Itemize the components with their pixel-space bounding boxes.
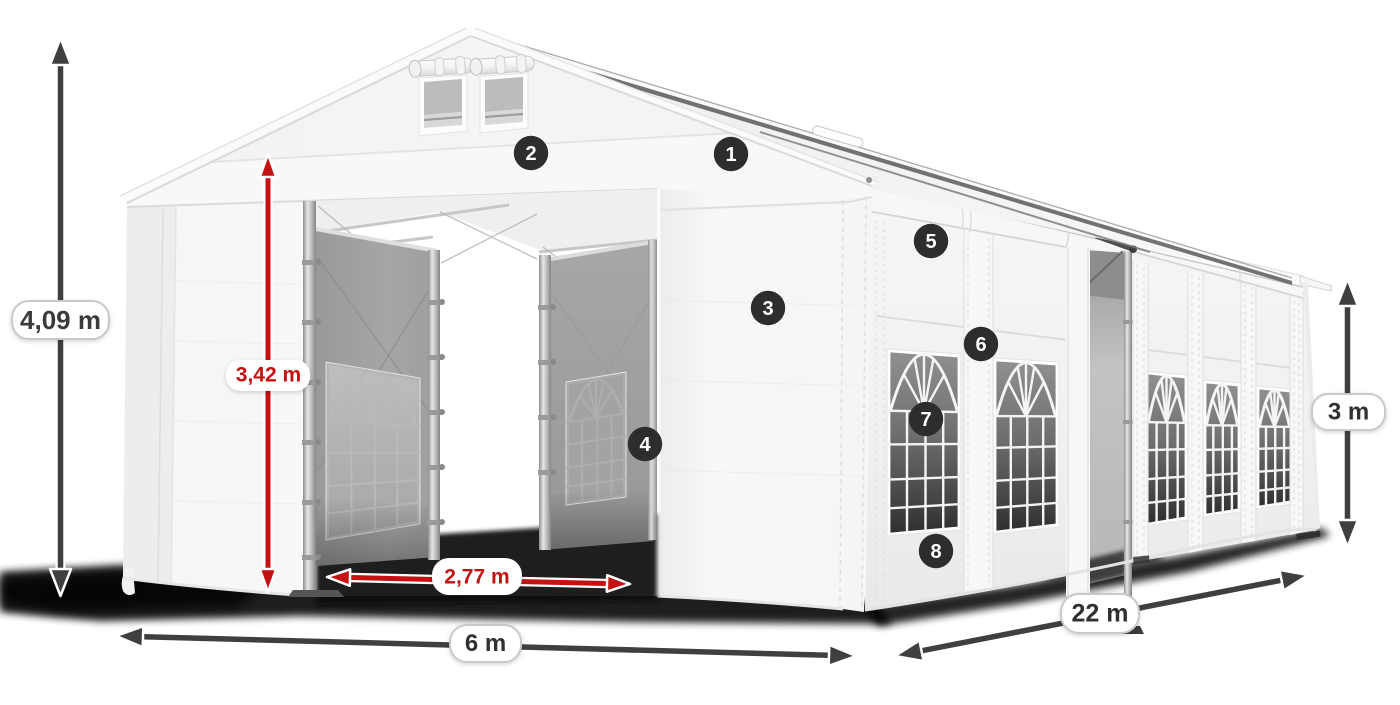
svg-text:4,09 m: 4,09 m [20,305,101,335]
svg-text:4: 4 [639,434,651,456]
svg-text:7: 7 [920,409,931,431]
svg-text:2: 2 [525,143,536,165]
svg-text:3,42 m: 3,42 m [236,364,301,387]
svg-text:3 m: 3 m [1328,399,1369,426]
svg-text:22 m: 22 m [1072,600,1129,628]
svg-text:5: 5 [925,231,936,253]
svg-text:3: 3 [762,298,773,320]
svg-text:8: 8 [930,541,941,563]
svg-text:6: 6 [975,334,986,356]
svg-text:6 m: 6 m [465,630,506,657]
svg-text:1: 1 [725,144,736,166]
svg-text:2,77 m: 2,77 m [444,566,509,589]
